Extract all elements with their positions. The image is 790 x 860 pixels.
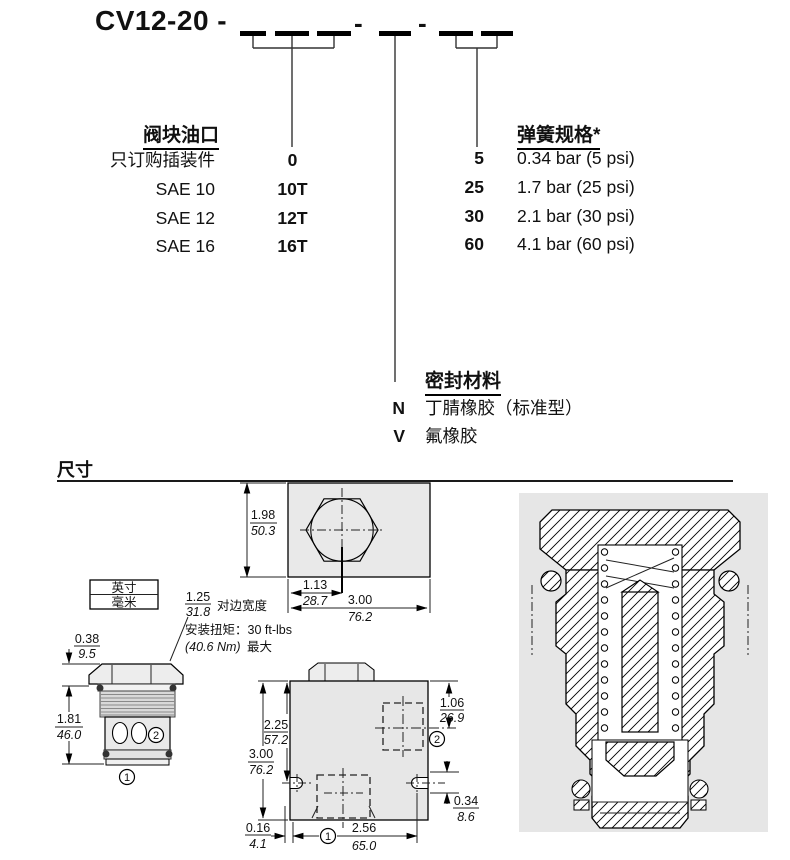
dim-topview-width-mm: 76.2 <box>348 610 372 624</box>
nose-oring <box>572 780 590 798</box>
dim-block-upper-in: 2.25 <box>264 718 288 732</box>
port-row-label: SAE 16 <box>40 236 215 257</box>
dim-port2-depth-mm: 26.9 <box>439 711 464 725</box>
dim-across-flats-mm: 31.8 <box>186 605 210 619</box>
datasheet-page: CV12-20 - - - 阀块油口 只订购插装件 0 SAE 10 10T S… <box>0 0 790 860</box>
oring-dot <box>166 751 173 758</box>
dim-head-height-mm: 9.5 <box>78 647 95 661</box>
port2-number: 2 <box>434 734 440 746</box>
port-row-label: SAE 10 <box>40 179 215 200</box>
seal-row-label: 丁腈橡胶（标准型） <box>425 398 685 419</box>
port-row-label: SAE 12 <box>40 208 215 229</box>
dim-topview-center-in: 1.13 <box>303 578 327 592</box>
across-flats-note: 对边宽度 <box>217 598 268 613</box>
port-row-code: 16T <box>270 236 315 257</box>
cartridge-hex-head <box>89 664 183 684</box>
cavity-block-view: 2 1.06 26.9 2.25 57.2 <box>245 663 479 853</box>
spring-row-code: 25 <box>450 177 484 198</box>
port-row-code: 12T <box>270 208 315 229</box>
dim-block-height-in: 3.00 <box>249 747 273 761</box>
dim-block-width-mm: 65.0 <box>352 839 376 853</box>
seal-row-code: V <box>378 426 405 447</box>
spring-row-code: 30 <box>450 206 484 227</box>
spring-row-label: 4.1 bar (60 psi) <box>517 234 737 255</box>
dim-topview-height-in: 1.98 <box>251 508 275 522</box>
cross-section-view <box>519 493 768 832</box>
poppet-stem <box>622 592 658 732</box>
backup-ring <box>691 800 706 810</box>
dim-head-height-in: 0.38 <box>75 632 99 646</box>
port1-number: 1 <box>124 772 130 784</box>
dim-block-height-mm: 76.2 <box>249 763 273 777</box>
seal-dot <box>170 685 177 692</box>
dimension-drawings: 1.98 50.3 1.13 28.7 3.00 76.2 英寸 毫米 1.25… <box>0 455 790 860</box>
block-hex-top <box>309 663 374 681</box>
dim-block-width-in: 2.56 <box>352 821 376 835</box>
dim-slot-in: 0.34 <box>454 794 478 808</box>
oring-dot <box>103 751 110 758</box>
spring-row-label: 0.34 bar (5 psi) <box>517 148 737 169</box>
legend-inch-label: 英寸 <box>111 581 136 595</box>
spring-row-code: 5 <box>450 148 484 169</box>
dim-topview-width-in: 3.00 <box>348 593 372 607</box>
port2-number: 2 <box>153 730 159 742</box>
upper-oring <box>719 571 739 591</box>
legend-mm-label: 毫米 <box>111 595 137 610</box>
dim-cartridge-length-mm: 46.0 <box>57 728 81 742</box>
nose-oring <box>690 780 708 798</box>
port1-number: 1 <box>325 831 331 843</box>
top-view-drawing: 1.98 50.3 1.13 28.7 3.00 76.2 <box>240 483 430 624</box>
port-table-heading: 阀块油口 <box>143 120 219 150</box>
port-row-code: 0 <box>270 150 315 171</box>
dim-port2-depth-in: 1.06 <box>440 696 464 710</box>
dim-topview-height-mm: 50.3 <box>251 524 275 538</box>
dim-cartridge-length-in: 1.81 <box>57 712 81 726</box>
dim-across-flats-in: 1.25 <box>186 590 210 604</box>
spring-table-heading: 弹簧规格* <box>517 120 600 150</box>
spring-row-code: 60 <box>450 234 484 255</box>
torque-note-max: 最大 <box>247 640 272 654</box>
spring-row-label: 2.1 bar (30 psi) <box>517 206 737 227</box>
torque-note-value: (40.6 Nm) <box>185 640 241 654</box>
torque-note-line1: 安装扭矩：30 ft-lbs <box>185 622 292 637</box>
cross-hole <box>132 723 147 744</box>
units-legend: 英寸 毫米 <box>90 580 158 610</box>
seal-row-code: N <box>378 398 405 419</box>
cross-hole <box>113 723 128 744</box>
spring-row-label: 1.7 bar (25 psi) <box>517 177 737 198</box>
port-row-code: 10T <box>270 179 315 200</box>
seal-dot <box>97 685 104 692</box>
backup-ring <box>574 800 589 810</box>
seal-table-heading: 密封材料 <box>425 366 501 396</box>
dim-topview-center-mm: 28.7 <box>302 594 328 608</box>
dim-block-edge-in: 0.16 <box>246 821 270 835</box>
seal-row-label: 氟橡胶 <box>425 426 685 447</box>
port-row-label: 只订购插装件 <box>40 150 215 171</box>
dim-block-edge-mm: 4.1 <box>249 837 266 851</box>
torque-annotation: 1.25 31.8 对边宽度 安装扭矩：30 ft-lbs (40.6 Nm) … <box>170 590 292 661</box>
cartridge-side-view: 2 1 0.38 9.5 1.81 46.0 <box>53 632 183 785</box>
dim-block-upper-mm: 57.2 <box>264 733 288 747</box>
dim-slot-mm: 8.6 <box>457 810 474 824</box>
upper-oring <box>541 571 561 591</box>
